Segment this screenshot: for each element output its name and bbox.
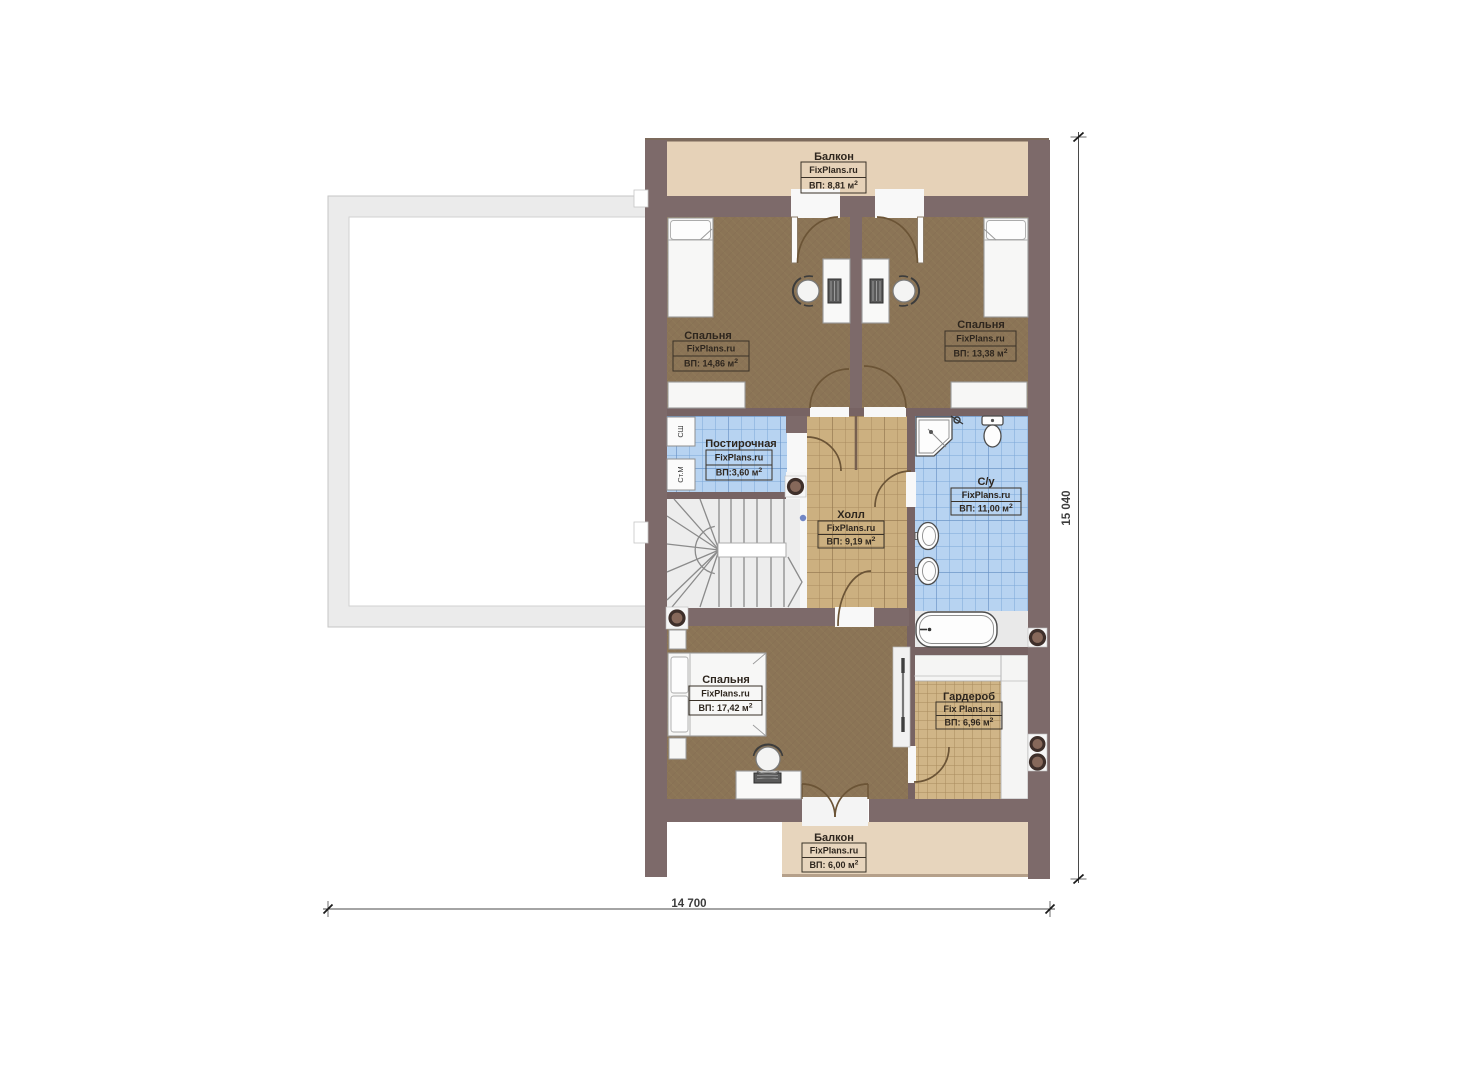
svg-text:С/у: С/у — [977, 476, 995, 488]
svg-text:Спальня: Спальня — [702, 674, 750, 686]
svg-text:Fix Plans.ru: Fix Plans.ru — [943, 704, 994, 714]
svg-text:Гардероб: Гардероб — [943, 691, 995, 703]
svg-text:Спальня: Спальня — [957, 319, 1005, 331]
svg-text:14 700: 14 700 — [671, 898, 706, 910]
svg-text:FixPlans.ru: FixPlans.ru — [827, 523, 876, 533]
svg-text:Спальня: Спальня — [684, 330, 732, 342]
svg-text:FixPlans.ru: FixPlans.ru — [962, 490, 1011, 500]
svg-text:ВП: 6,96 м2: ВП: 6,96 м2 — [945, 717, 994, 728]
svg-text:FixPlans.ru: FixPlans.ru — [701, 689, 750, 699]
svg-text:СШ: СШ — [676, 425, 685, 437]
svg-text:ВП: 13,38 м2: ВП: 13,38 м2 — [954, 348, 1008, 359]
svg-text:ВП: 11,00 м2: ВП: 11,00 м2 — [959, 503, 1013, 514]
svg-text:ВП: 8,81 м2: ВП: 8,81 м2 — [809, 180, 858, 191]
svg-text:ВП: 17,42 м2: ВП: 17,42 м2 — [699, 703, 753, 714]
svg-text:FixPlans.ru: FixPlans.ru — [715, 453, 764, 463]
svg-text:15 040: 15 040 — [1061, 490, 1073, 525]
svg-text:Ст.М: Ст.М — [676, 466, 685, 482]
svg-text:ВП:3,60 м2: ВП:3,60 м2 — [716, 467, 763, 478]
svg-text:FixPlans.ru: FixPlans.ru — [687, 344, 736, 354]
svg-text:FixPlans.ru: FixPlans.ru — [809, 165, 858, 175]
svg-text:ВП: 9,19 м2: ВП: 9,19 м2 — [827, 536, 876, 547]
svg-text:Балкон: Балкон — [814, 151, 854, 163]
svg-text:FixPlans.ru: FixPlans.ru — [810, 846, 859, 856]
svg-text:Постирочная: Постирочная — [705, 438, 776, 450]
svg-text:FixPlans.ru: FixPlans.ru — [956, 334, 1005, 344]
svg-text:Балкон: Балкон — [814, 832, 854, 844]
svg-text:ВП: 6,00 м2: ВП: 6,00 м2 — [810, 860, 859, 871]
svg-text:ВП: 14,86 м2: ВП: 14,86 м2 — [684, 358, 738, 369]
svg-text:Холл: Холл — [837, 509, 865, 521]
